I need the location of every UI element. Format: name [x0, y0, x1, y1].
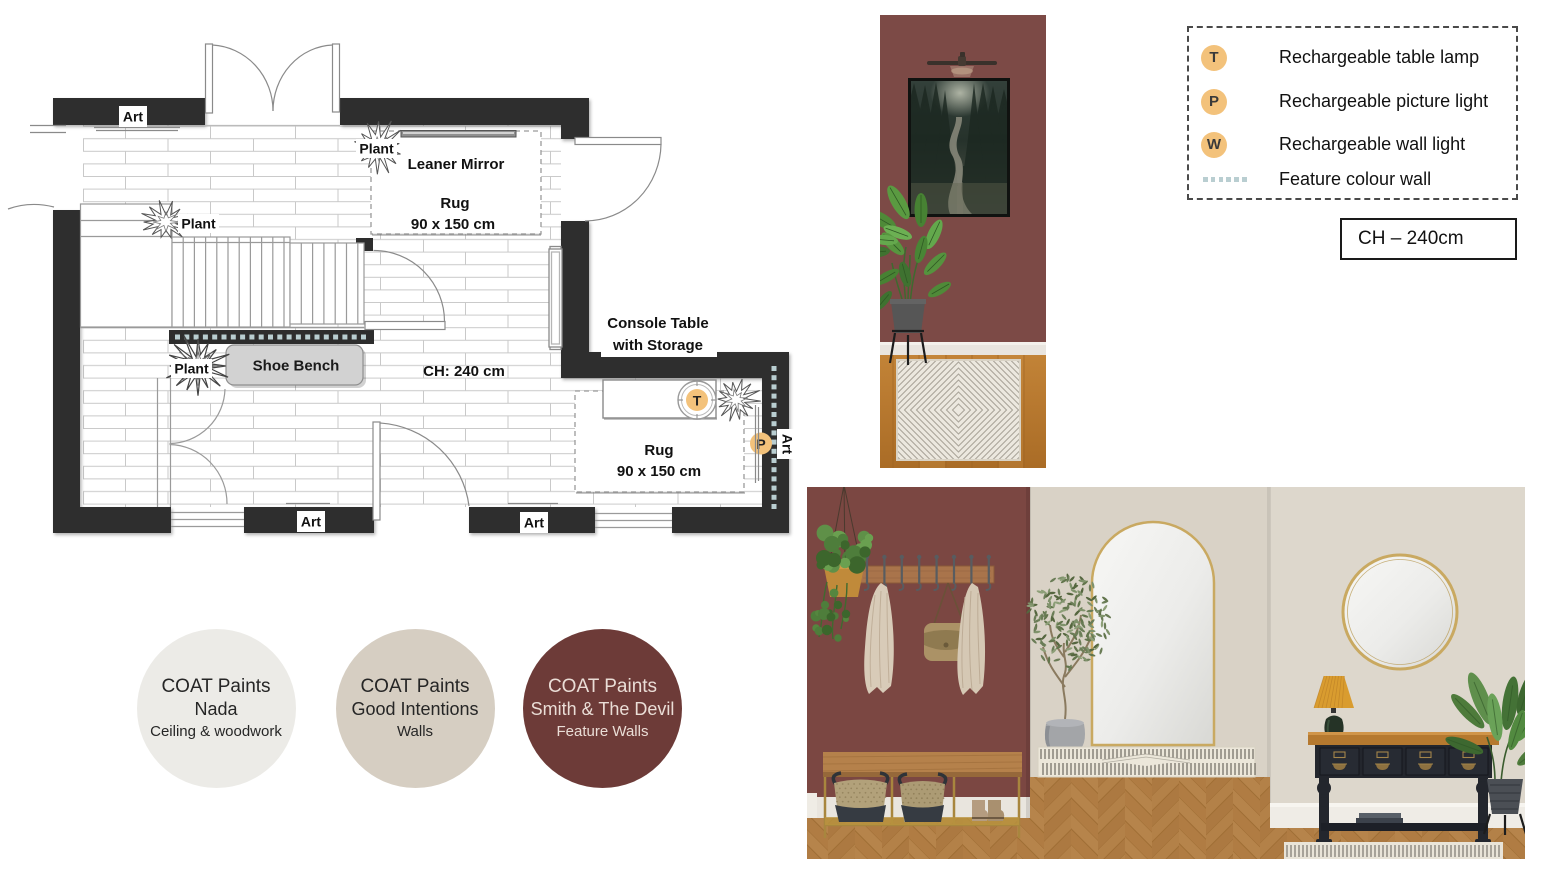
svg-text:Art: Art: [524, 515, 545, 531]
svg-text:Rug: Rug: [440, 195, 469, 212]
svg-text:90 x 150 cm: 90 x 150 cm: [617, 463, 701, 480]
svg-text:P: P: [756, 436, 765, 452]
svg-text:Art: Art: [301, 514, 322, 530]
svg-text:Plant: Plant: [359, 141, 394, 157]
svg-text:Plant: Plant: [181, 216, 216, 232]
svg-text:Console Table: Console Table: [607, 315, 708, 332]
svg-text:Plant: Plant: [174, 361, 209, 377]
svg-text:CH: 240 cm: CH: 240 cm: [423, 363, 505, 380]
svg-text:Art: Art: [123, 109, 144, 125]
svg-text:Leaner Mirror: Leaner Mirror: [408, 156, 505, 173]
svg-text:Shoe Bench: Shoe Bench: [253, 358, 340, 375]
svg-text:T: T: [693, 393, 702, 409]
svg-text:with Storage: with Storage: [612, 337, 703, 354]
svg-text:Art: Art: [780, 434, 796, 455]
svg-text:Rug: Rug: [644, 442, 673, 459]
svg-text:90 x 150 cm: 90 x 150 cm: [411, 216, 495, 233]
